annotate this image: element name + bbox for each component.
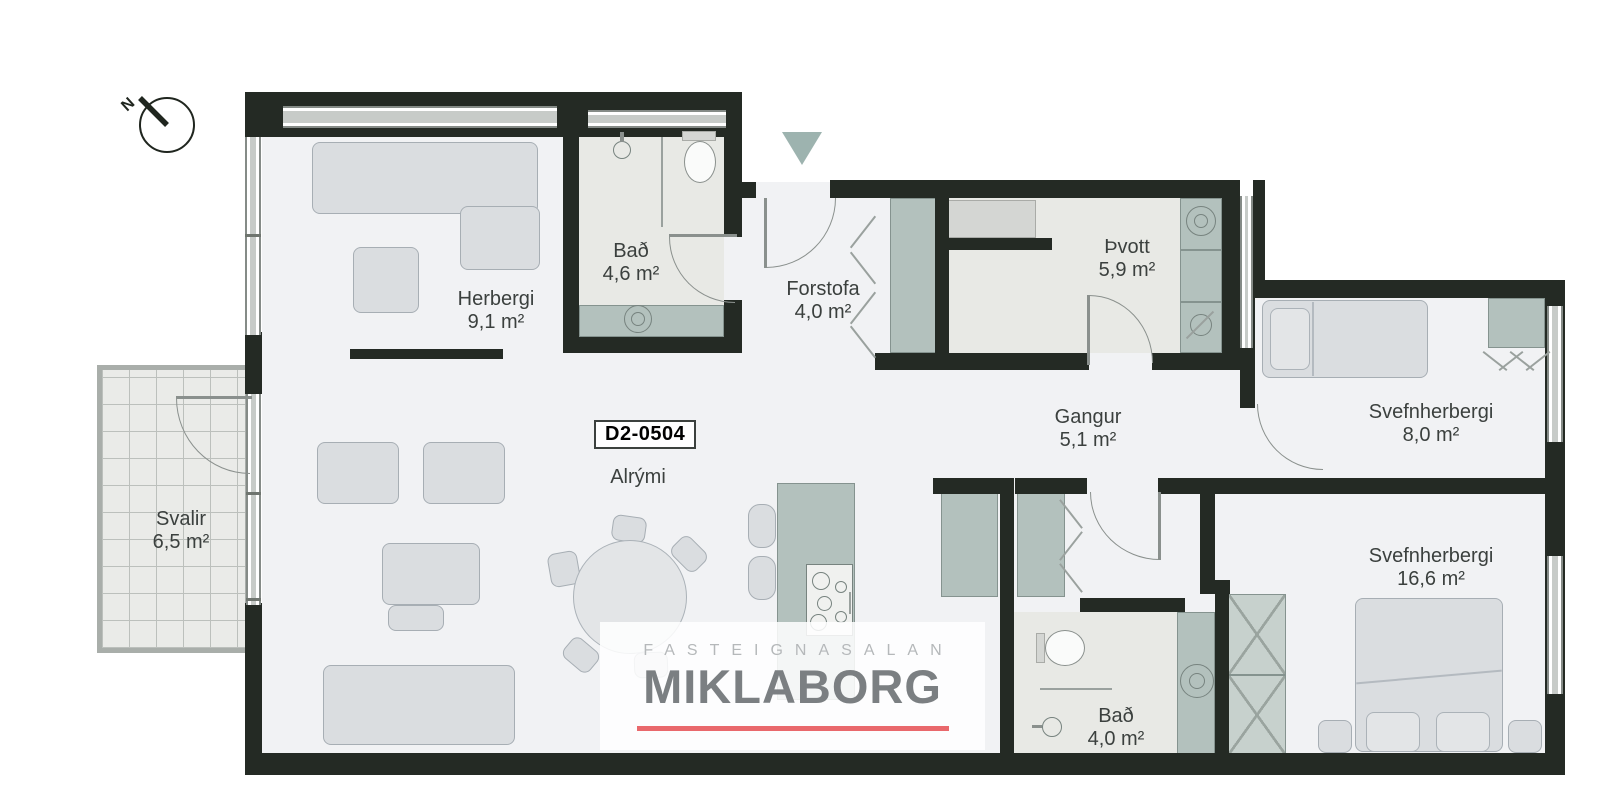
- bed-fold-line: [1312, 302, 1314, 376]
- agency-watermark: FASTEIGNASALAN MIKLABORG: [600, 622, 985, 750]
- wall: [1015, 478, 1087, 494]
- shower-drain-inner: [1189, 673, 1205, 689]
- room-label-bad-upper: Bað 4,6 m²: [551, 240, 711, 286]
- burner: [835, 581, 847, 593]
- door-leaf: [176, 396, 252, 399]
- room-label-forstofa: Forstofa 4,0 m²: [743, 278, 903, 324]
- nightstand: [1318, 720, 1352, 753]
- wall: [1200, 580, 1230, 594]
- cooktop-controls: [849, 592, 851, 614]
- window-divider: [246, 598, 261, 601]
- wall: [245, 332, 262, 394]
- room-name: Bað: [1036, 705, 1196, 728]
- armchair: [423, 442, 505, 504]
- wardrobe: [1228, 675, 1286, 755]
- pillow: [1436, 712, 1490, 752]
- wall: [1158, 478, 1240, 494]
- room-name: Forstofa: [743, 278, 903, 301]
- room-area: 16,6 m²: [1351, 568, 1511, 591]
- sofa: [323, 665, 515, 745]
- room-area: 9,1 m²: [416, 311, 576, 334]
- wall: [1240, 280, 1565, 298]
- nightstand: [1508, 720, 1542, 753]
- wall: [830, 180, 1240, 198]
- shower-stem: [620, 132, 624, 142]
- room-name: Svefnherbergi: [1351, 545, 1511, 568]
- pillow: [1270, 308, 1310, 370]
- wall: [724, 137, 742, 237]
- room-area: 8,0 m²: [1351, 424, 1511, 447]
- coffee-table-extension: [388, 605, 444, 631]
- wall: [875, 353, 1089, 370]
- exterior-notch: [1222, 128, 1565, 280]
- room-name: Bað: [551, 240, 711, 263]
- window: [1547, 556, 1563, 694]
- window-divider: [245, 234, 261, 237]
- laundry-counter: [948, 200, 1036, 238]
- room-label-svefnherbergi-small: Svefnherbergi 8,0 m²: [1351, 401, 1511, 447]
- wardrobe: [1228, 594, 1286, 675]
- shower-head: [613, 141, 631, 159]
- washer-drum-inner: [1194, 214, 1208, 228]
- wardrobe: [941, 490, 998, 597]
- wall: [935, 198, 949, 355]
- agency-tagline: FASTEIGNASALAN: [600, 642, 985, 660]
- room-label-gangur: Gangur 5,1 m²: [1008, 406, 1168, 452]
- entrance-arrow-icon: [782, 132, 822, 165]
- exterior-notch: [830, 100, 1240, 180]
- toilet-bowl: [1045, 630, 1085, 666]
- bathroom-partition: [1040, 688, 1112, 690]
- toilet-tank: [682, 131, 716, 141]
- room-label-svalir: Svalir 6,5 m²: [101, 508, 261, 554]
- room-area: 4,0 m²: [743, 301, 903, 324]
- armchair: [317, 442, 399, 504]
- burner: [812, 572, 830, 590]
- coffee-table: [382, 543, 480, 605]
- wall: [1080, 598, 1185, 612]
- floor-entry-threshold: [756, 182, 830, 198]
- window-divider: [246, 492, 261, 495]
- room-label-herbergi: Herbergi 9,1 m²: [416, 288, 576, 334]
- compass-north-label: N: [118, 95, 138, 115]
- hall-closet: [890, 198, 938, 353]
- wall: [1222, 180, 1240, 353]
- wall: [1240, 478, 1565, 494]
- room-area: 5,9 m²: [1047, 259, 1207, 282]
- toilet-tank: [1036, 633, 1045, 663]
- bar-stool: [748, 504, 776, 548]
- pillow: [1366, 712, 1420, 752]
- room-area: 4,6 m²: [551, 263, 711, 286]
- door-leaf: [1158, 492, 1161, 560]
- wall: [245, 603, 262, 755]
- wall-partial: [350, 349, 503, 359]
- room-name: Þvott: [1047, 236, 1207, 259]
- unit-number-badge: D2-0504: [594, 420, 696, 449]
- burner: [817, 596, 832, 611]
- room-label-thvott: Þvott 5,9 m²: [1047, 236, 1207, 282]
- sofa-l-chaise: [460, 206, 540, 270]
- wall: [948, 238, 1052, 250]
- agency-brand: MIKLABORG: [600, 662, 985, 711]
- ottoman: [353, 247, 419, 313]
- wall: [933, 478, 1000, 494]
- room-area: 5,1 m²: [1008, 429, 1168, 452]
- sink-basin-inner: [631, 312, 645, 326]
- logo-underline: [637, 726, 949, 731]
- window: [1547, 306, 1563, 442]
- room-area: 6,5 m²: [101, 531, 261, 554]
- wall: [563, 337, 742, 353]
- room-area: 4,0 m²: [1036, 728, 1196, 751]
- wardrobe: [1488, 298, 1545, 348]
- wall: [245, 753, 1565, 775]
- window: [1240, 196, 1253, 348]
- bar-stool: [748, 556, 776, 600]
- room-label-svefnherbergi-large: Svefnherbergi 16,6 m²: [1351, 545, 1511, 591]
- room-label-alrymi: Alrými: [558, 466, 718, 489]
- window: [283, 106, 557, 128]
- room-name: Herbergi: [416, 288, 576, 311]
- wall: [1200, 494, 1215, 594]
- north-arrow-icon: N: [115, 78, 205, 168]
- bathroom-partition: [661, 137, 663, 227]
- room-name: Alrými: [558, 466, 718, 489]
- wall: [1152, 353, 1240, 370]
- wardrobe: [1017, 490, 1065, 597]
- door-leaf: [1087, 295, 1090, 365]
- room-name: Gangur: [1008, 406, 1168, 429]
- door-leaf: [669, 234, 737, 237]
- wall: [1215, 580, 1229, 755]
- window: [588, 110, 726, 128]
- sofa-l-shaped: [312, 142, 538, 214]
- room-name: Svefnherbergi: [1351, 401, 1511, 424]
- door-leaf: [764, 198, 767, 268]
- floor-plan: FASTEIGNASALAN MIKLABORG Herbergi 9,1 m²…: [0, 0, 1600, 789]
- room-label-bad-lower: Bað 4,0 m²: [1036, 705, 1196, 751]
- wall: [1000, 478, 1014, 755]
- room-name: Svalir: [101, 508, 261, 531]
- wall: [742, 182, 756, 198]
- toilet-bowl: [684, 141, 716, 183]
